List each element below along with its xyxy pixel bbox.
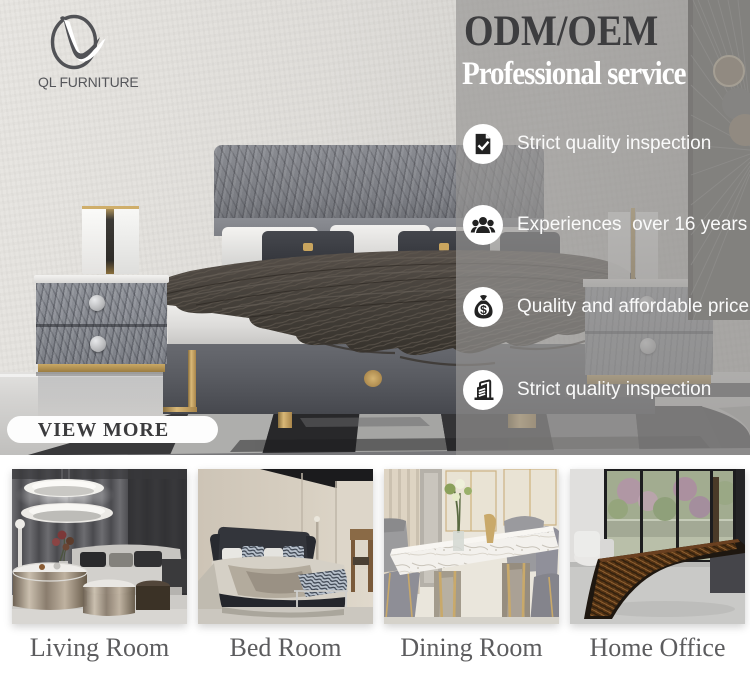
svg-text:$: $: [480, 303, 487, 317]
